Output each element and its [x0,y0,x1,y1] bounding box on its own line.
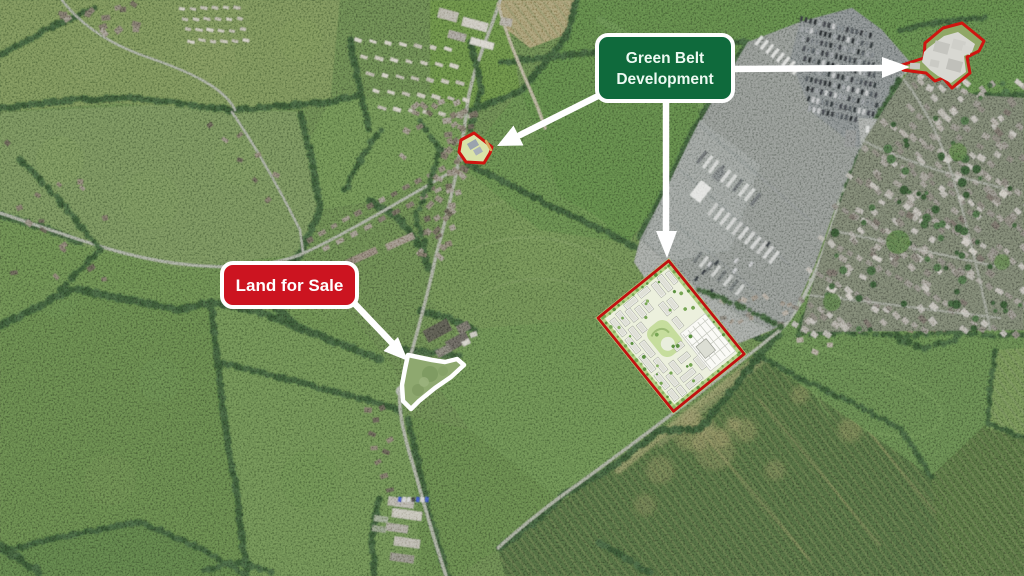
svg-text:Green Belt: Green Belt [626,50,704,67]
svg-text:Land for Sale: Land for Sale [236,276,344,295]
svg-text:Development: Development [616,71,713,88]
